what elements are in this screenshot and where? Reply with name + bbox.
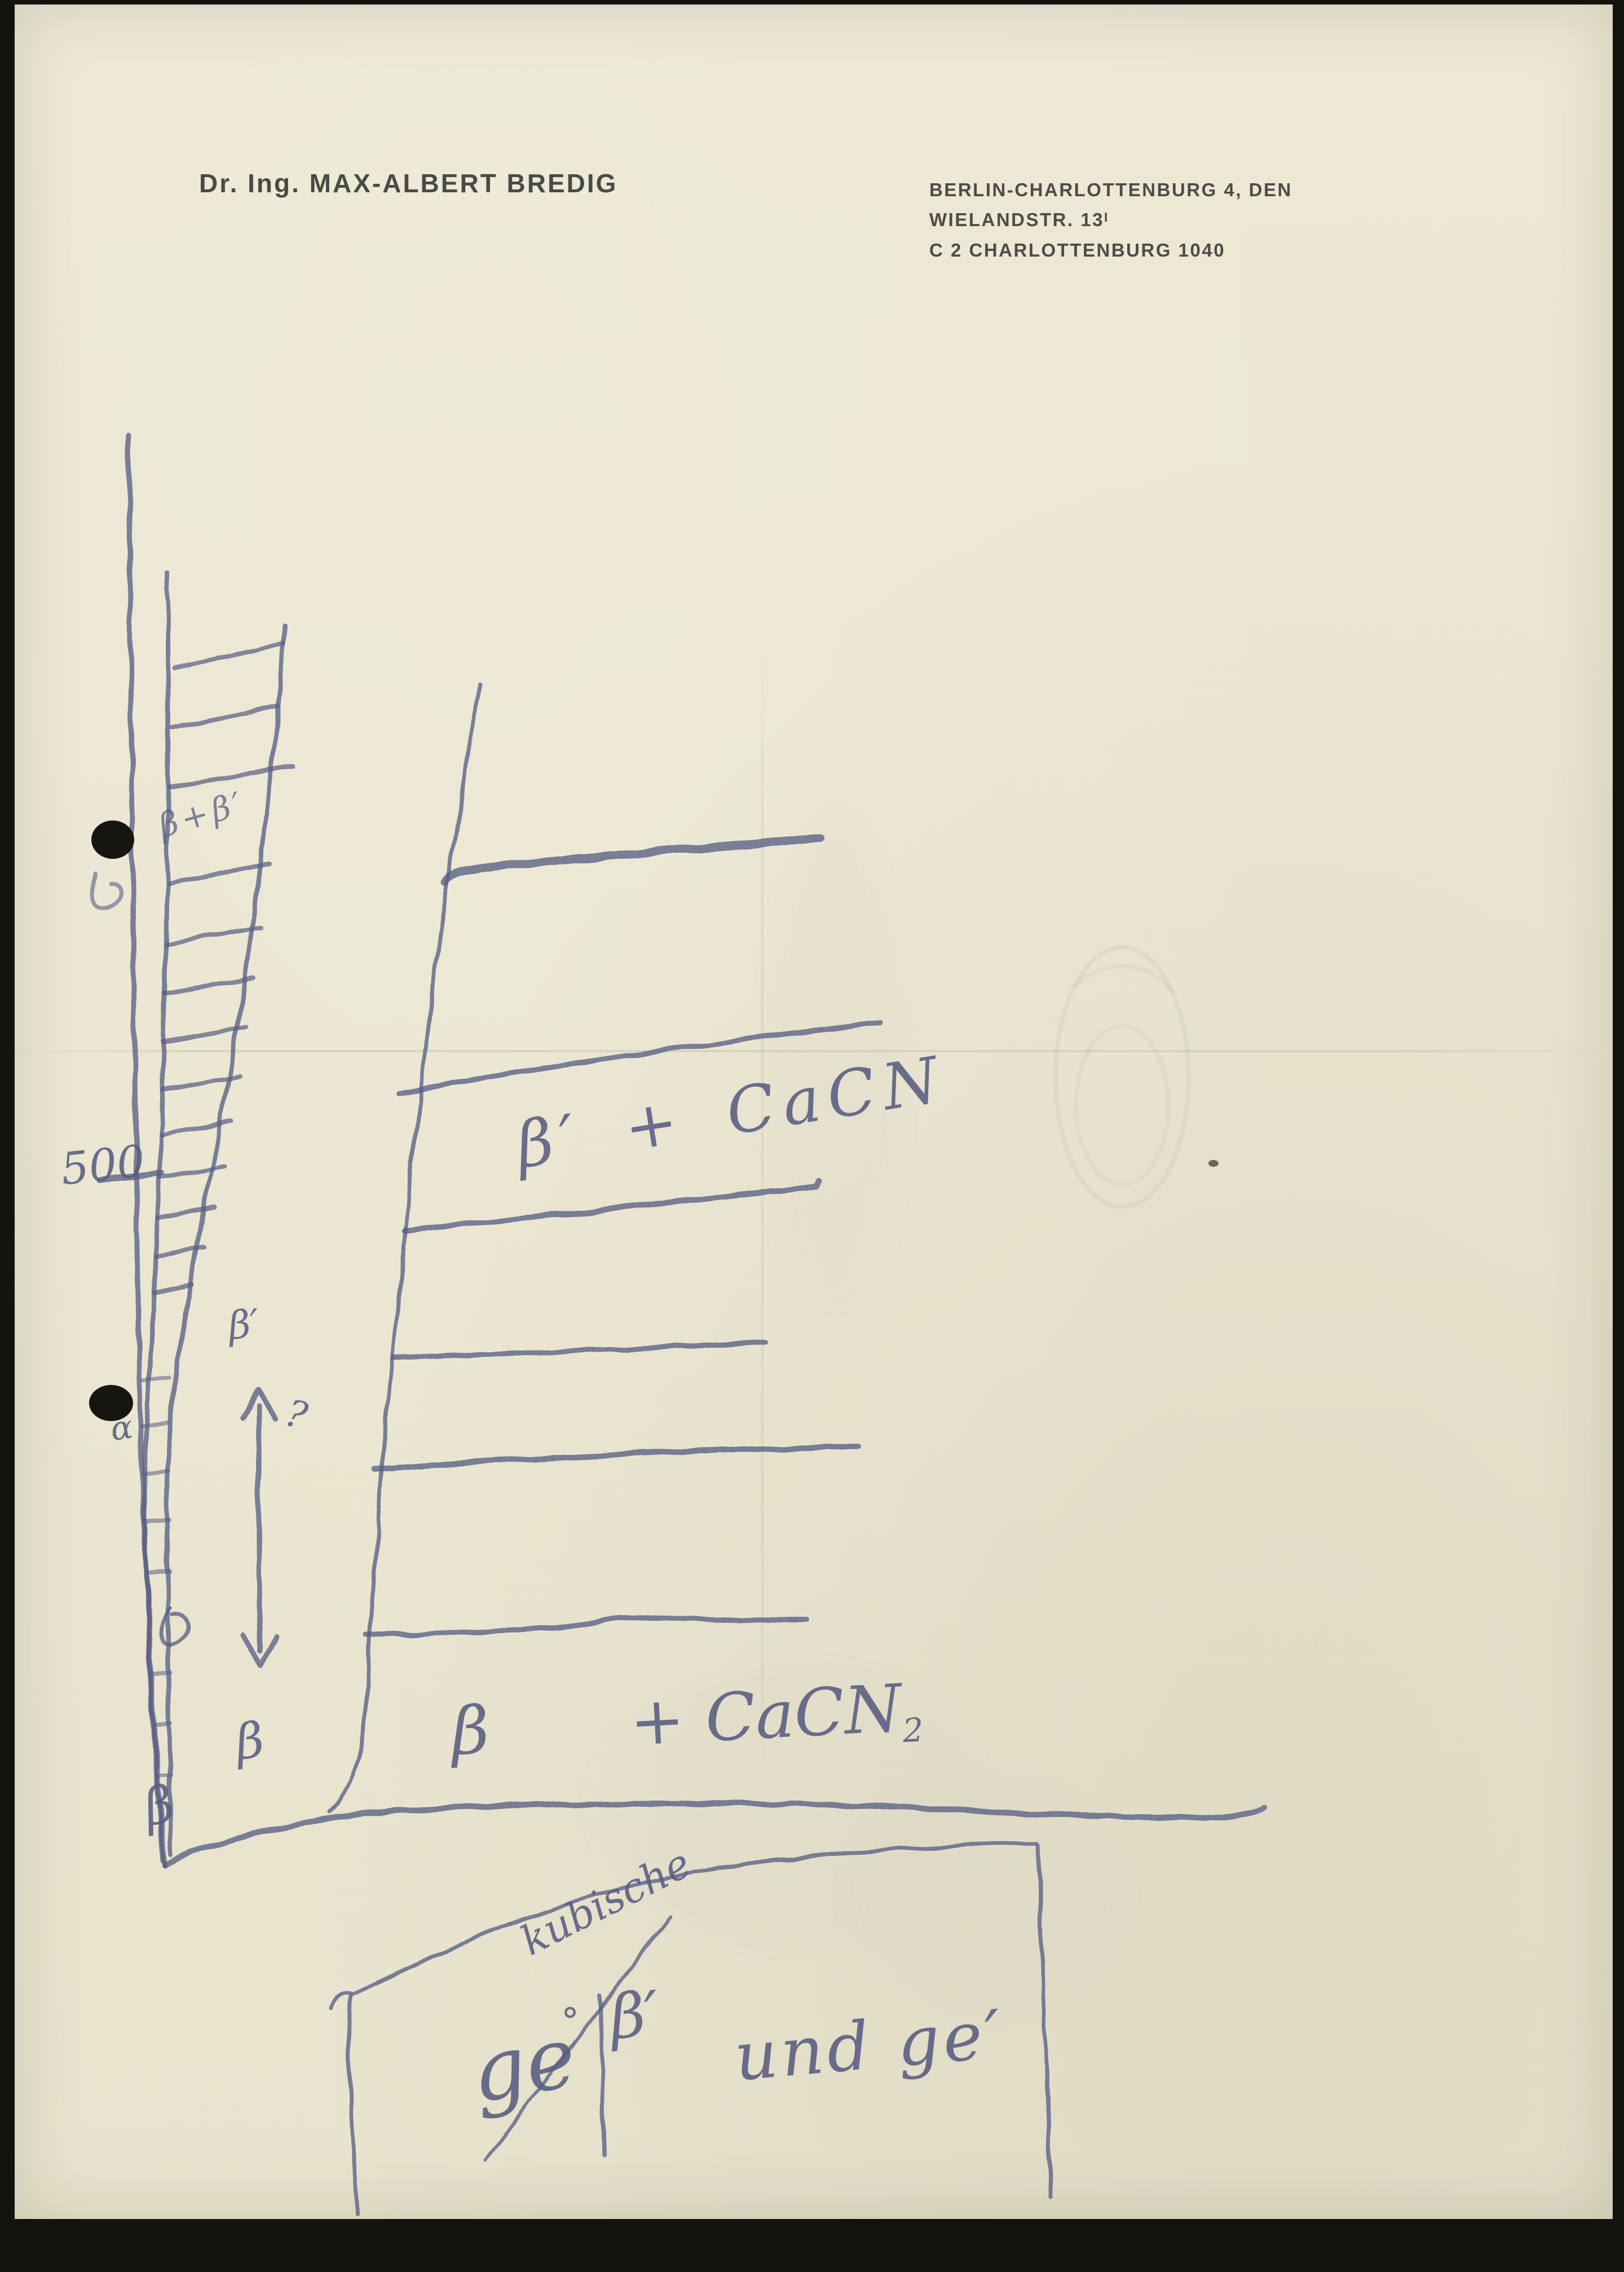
region-left-boundary (330, 685, 480, 1812)
note-beta-prime: β′ (607, 1978, 663, 2053)
beta-prime-label: β′ (226, 1301, 262, 1348)
stray-squiggle (91, 873, 120, 908)
axis-tick-label-500: 500 (59, 1136, 147, 1195)
tie-line-3 (404, 1181, 819, 1230)
double-arrow (242, 1389, 276, 1666)
region-lower-rest: + CaCN (628, 1670, 904, 1761)
note-divider-stroke (600, 1996, 604, 2155)
ink-strokes (91, 435, 1263, 2214)
note-ge-superscript: ° (561, 2001, 579, 2042)
gap (490, 1745, 631, 1752)
wedge-rungs (155, 644, 293, 1292)
bracket-right-line (1038, 1846, 1051, 2198)
tie-line-5 (375, 1446, 858, 1470)
wedge-bottom-knot (161, 1608, 188, 1644)
tie-line-1 (445, 839, 821, 883)
punch-hole-top (91, 820, 134, 859)
ink-speck (1208, 1160, 1219, 1167)
embossed-seal-watermark (1056, 947, 1189, 1207)
region-lower-beta: β (449, 1692, 491, 1770)
tie-line-4 (394, 1342, 765, 1358)
bracket-left-line (349, 1996, 358, 2214)
region-lower-subscript: 2 (902, 1710, 924, 1750)
scanned-document: Dr. Ing. MAX-ALBERT BREDIG BERLIN-CHARLO… (0, 0, 1624, 2272)
tie-line-6 (367, 1618, 807, 1635)
